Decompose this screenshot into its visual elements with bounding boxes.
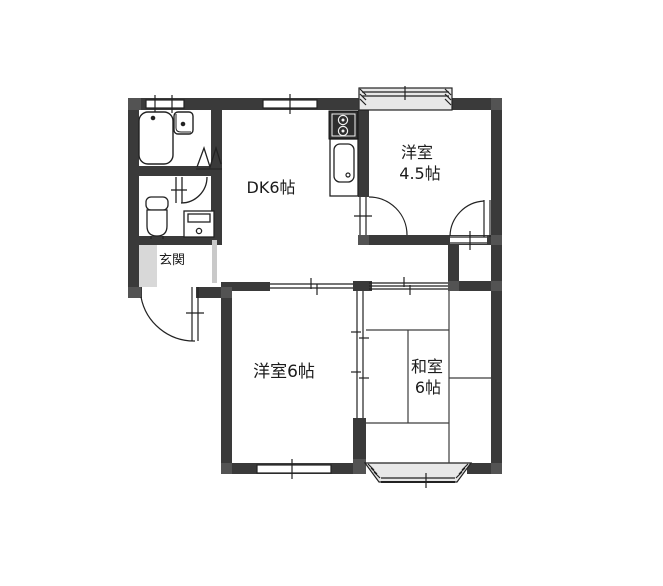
room-western-6 [232, 291, 353, 463]
floorplan-drawing: DK6帖 洋室 4.5帖 洋室6帖 和室 6帖 玄関 [0, 0, 663, 586]
wall-west-upper [128, 98, 139, 298]
room-japanese-6 [366, 291, 491, 463]
pillar-icon [448, 281, 459, 291]
entrance-door [141, 287, 204, 341]
room-toilet [139, 176, 184, 236]
bay-window-north [359, 86, 452, 110]
room-genkan [139, 245, 212, 287]
closet-4-5 [459, 245, 491, 281]
pillar-icon [358, 235, 369, 245]
pillar-icon [221, 287, 232, 298]
genkan-step-edge [212, 240, 217, 283]
wall-bath-bottom [128, 166, 222, 176]
room-dk [222, 110, 358, 282]
pillar-icon [491, 463, 502, 474]
pillar-icon [128, 287, 141, 298]
pillar-icon [221, 463, 232, 474]
oshiire-closet [369, 245, 448, 281]
bay-window-south [365, 463, 471, 488]
pillar-icon [491, 281, 502, 291]
pillar-icon [128, 98, 141, 110]
floorplan-canvas: DK6帖 洋室 4.5帖 洋室6帖 和室 6帖 玄関 [0, 0, 663, 586]
room-bathroom [139, 110, 211, 166]
pillar-icon [491, 235, 502, 245]
room-western-4-5 [369, 110, 491, 235]
pillar-icon [353, 459, 366, 474]
wall-west-lower [221, 287, 232, 474]
pillar-icon [491, 98, 502, 110]
washing-machine-pan [184, 211, 214, 237]
